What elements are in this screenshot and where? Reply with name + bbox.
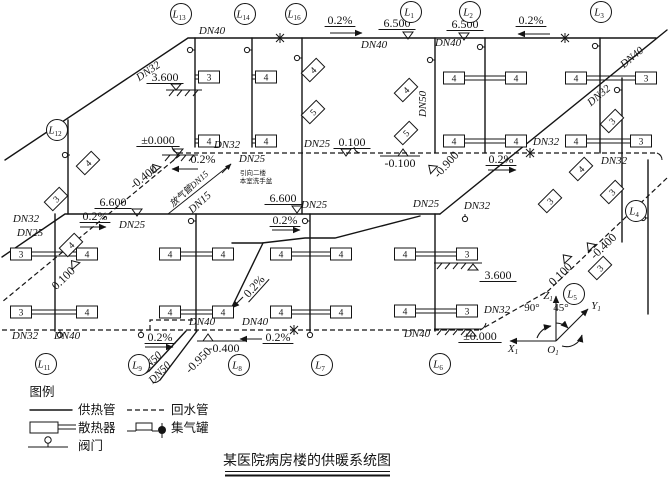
- svg-text:6.600: 6.600: [100, 195, 127, 209]
- svg-text:4: 4: [574, 137, 579, 147]
- radiator: 4: [160, 306, 181, 318]
- svg-text:4: 4: [168, 250, 173, 260]
- radiator: 4: [256, 71, 277, 83]
- elevation-label: 0.2%: [325, 13, 356, 27]
- radiator: 4: [271, 306, 292, 318]
- radiator: 4: [566, 135, 587, 147]
- pipe-size-label: DN40: [617, 44, 646, 71]
- svg-text:4: 4: [168, 308, 173, 318]
- axis-x-label: X1: [507, 343, 518, 356]
- svg-text:0.2%: 0.2%: [83, 209, 108, 223]
- drawing-title: 某医院病房楼的供暖系统图: [223, 453, 391, 469]
- elevation-label: ±0.000: [136, 133, 179, 147]
- svg-text:DN25: DN25: [118, 219, 146, 231]
- svg-text:3: 3: [639, 137, 644, 147]
- svg-text:引向二楼: 引向二楼: [240, 168, 267, 177]
- svg-text:4: 4: [85, 250, 90, 260]
- elevation-label: 0.2%: [239, 270, 270, 302]
- elevation-label: -0.400: [209, 341, 240, 355]
- radiator: 4: [566, 72, 587, 84]
- svg-text:-0.100: -0.100: [385, 156, 416, 170]
- radiator: 3: [636, 72, 657, 84]
- legend: 图例 供热管 回水管 散热器 集气罐 阀门: [28, 385, 209, 453]
- svg-text:0.2%: 0.2%: [191, 152, 216, 166]
- riser-tag: L2: [460, 2, 481, 23]
- radiator: 3: [600, 180, 624, 204]
- pipe-size-label: DN25: [238, 153, 266, 165]
- elevation-label: 3.600: [480, 268, 517, 282]
- svg-text:DN40: DN40: [360, 39, 388, 51]
- pipe-size-label: DN25: [412, 198, 440, 210]
- svg-text:3.600: 3.600: [485, 268, 512, 282]
- pipe-size-label: DN32: [11, 330, 39, 342]
- elevation-label: 6.600: [95, 195, 132, 209]
- diagram-canvas: 3444444443433434444444444343454543434333…: [0, 0, 670, 479]
- svg-text:0.2%: 0.2%: [273, 213, 298, 227]
- riser-tags: L13L14L16L1L2L3L12L4L5L11L9L8L7L6: [36, 2, 647, 376]
- svg-text:DN32: DN32: [12, 213, 40, 225]
- svg-text:4: 4: [264, 73, 269, 83]
- pipe-size-label: DN40: [403, 328, 431, 340]
- elevation-label: -0.400: [127, 162, 160, 192]
- svg-text:4: 4: [264, 137, 269, 147]
- radiator: 3: [199, 71, 220, 83]
- radiator: 5: [301, 100, 325, 124]
- pipe-size-label: DN25: [303, 138, 331, 150]
- angle-45-label: 45°: [553, 302, 568, 314]
- radiator: 3: [538, 189, 562, 213]
- svg-text:4: 4: [339, 250, 344, 260]
- svg-text:3: 3: [19, 250, 24, 260]
- pipe-size-label: DN25: [16, 227, 44, 239]
- svg-text:4: 4: [514, 137, 519, 147]
- note-label: 本室洗手盆: [240, 176, 273, 185]
- riser-tag: L14: [235, 4, 256, 25]
- svg-text:DN25: DN25: [412, 198, 440, 210]
- radiator: 4: [569, 157, 593, 181]
- radiator: 3: [457, 248, 478, 260]
- pipe-size-label: DN40: [434, 37, 462, 49]
- radiator: 3: [11, 306, 32, 318]
- elevation-label: 0.2%: [486, 152, 517, 166]
- pipe-size-label: DN40: [198, 25, 226, 37]
- legend-collector-label: 集气罐: [171, 420, 209, 435]
- svg-text:DN40: DN40: [188, 316, 216, 328]
- pipe-size-label: DN32: [483, 304, 511, 316]
- elevation-labels: 0.2%6.5006.5000.2%3.600±0.0000.100-0.100…: [49, 13, 620, 376]
- svg-text:4: 4: [574, 74, 579, 84]
- svg-text:-0.400: -0.400: [209, 341, 240, 355]
- svg-text:DN40: DN40: [53, 330, 81, 342]
- valve-icon: [592, 43, 600, 48]
- svg-text:DN25: DN25: [16, 227, 44, 239]
- svg-text:DN32: DN32: [213, 139, 241, 151]
- svg-text:-0.400: -0.400: [127, 162, 160, 192]
- radiator: 4: [395, 305, 416, 317]
- pipe-size-label: DN32: [584, 82, 613, 109]
- elevation-label: 3.600: [147, 70, 184, 84]
- radiator: 3: [588, 256, 612, 280]
- axis-origin-label: O1: [547, 344, 558, 357]
- radiator: 3: [11, 248, 32, 260]
- pipe-size-label: DN25: [300, 199, 328, 211]
- radiator: 4: [506, 135, 527, 147]
- riser-tag: L6: [430, 354, 451, 375]
- svg-text:3.600: 3.600: [152, 70, 179, 84]
- heating-system-drawing: 3444444443433434444444444343454543434333…: [0, 0, 670, 479]
- elevation-label: 0.100: [334, 135, 371, 149]
- valve-icon: [187, 47, 195, 52]
- note-label: 引向二楼: [240, 168, 267, 177]
- axes-icon: X1 Z1 Y1 O1 90° 45°: [507, 290, 601, 357]
- elevation-label: 0.2%: [191, 152, 216, 166]
- svg-text:±0.000: ±0.000: [141, 133, 175, 147]
- radiator: 4: [77, 306, 98, 318]
- valve-icon: [294, 55, 302, 60]
- svg-text:DN40: DN40: [434, 37, 462, 49]
- svg-text:3: 3: [465, 307, 470, 317]
- valve-icon: [427, 57, 435, 62]
- svg-text:±0.000: ±0.000: [463, 329, 497, 343]
- pipe-size-label: DN32: [600, 155, 628, 167]
- svg-text:4: 4: [85, 308, 90, 318]
- svg-text:4: 4: [452, 137, 457, 147]
- svg-text:DN25: DN25: [238, 153, 266, 165]
- svg-text:4: 4: [221, 308, 226, 318]
- radiator: 3: [44, 187, 68, 211]
- riser-tag: L8: [229, 355, 250, 376]
- valve-icon: [244, 47, 252, 52]
- svg-text:0.100: 0.100: [339, 135, 366, 149]
- svg-text:DN32: DN32: [600, 155, 628, 167]
- radiator: 4: [331, 306, 352, 318]
- radiator: 4: [444, 72, 465, 84]
- valve-icon: [307, 330, 312, 338]
- valve-icon: [62, 152, 70, 157]
- svg-text:4: 4: [403, 307, 408, 317]
- radiator-symbol-icon: [30, 422, 76, 433]
- svg-text:DN25: DN25: [300, 199, 328, 211]
- elevation-label: 0.2%: [80, 209, 111, 223]
- riser-tag: L9: [129, 355, 150, 376]
- elevation-label: 0.2%: [145, 330, 176, 344]
- elevation-label: 6.600: [265, 191, 302, 205]
- svg-text:3: 3: [19, 308, 24, 318]
- radiator: 4: [394, 78, 418, 102]
- air-collector-icon: [127, 423, 166, 438]
- svg-text:DN32: DN32: [483, 304, 511, 316]
- valve-icon: [188, 218, 196, 223]
- radiator: 4: [76, 151, 100, 175]
- riser-tag: L11: [36, 354, 57, 375]
- valve-icon: [614, 87, 622, 92]
- svg-text:DN32: DN32: [584, 82, 613, 109]
- elevation-label: -0.100: [385, 156, 416, 170]
- valves: [57, 43, 648, 337]
- svg-text:4: 4: [452, 74, 457, 84]
- svg-text:0.2%: 0.2%: [489, 152, 514, 166]
- svg-text:4: 4: [339, 308, 344, 318]
- pipe-size-label: DN32: [12, 213, 40, 225]
- axis-y-label: Y1: [591, 300, 601, 313]
- svg-text:4: 4: [403, 250, 408, 260]
- riser-tag: L4: [626, 201, 647, 222]
- pipe-size-label: DN25: [118, 219, 146, 231]
- valve-icon: [462, 214, 467, 222]
- svg-text:4: 4: [514, 74, 519, 84]
- riser-tag: L1: [401, 2, 422, 23]
- radiator: 4: [77, 248, 98, 260]
- svg-text:3: 3: [644, 74, 649, 84]
- pipe-size-label: DN40: [360, 39, 388, 51]
- svg-text:4: 4: [221, 250, 226, 260]
- svg-text:0.2%: 0.2%: [148, 330, 173, 344]
- radiator: 4: [256, 135, 277, 147]
- radiator: 4: [301, 58, 325, 82]
- legend-valve-label: 阀门: [78, 438, 103, 453]
- radiator: 4: [506, 72, 527, 84]
- valve-icon: [477, 44, 485, 49]
- riser-tag: L7: [312, 355, 333, 376]
- svg-text:本室洗手盆: 本室洗手盆: [240, 176, 273, 185]
- svg-text:DN40: DN40: [198, 25, 226, 37]
- radiator: 4: [331, 248, 352, 260]
- riser-tag: L16: [286, 4, 307, 25]
- svg-text:0.2%: 0.2%: [266, 330, 291, 344]
- riser-tag: L12: [47, 120, 68, 141]
- elevation-label: 0.2%: [516, 13, 547, 27]
- riser-tag: L13: [171, 4, 192, 25]
- svg-text:DN32: DN32: [11, 330, 39, 342]
- svg-text:3: 3: [207, 73, 212, 83]
- svg-text:DN32: DN32: [463, 200, 491, 212]
- radiator: 4: [213, 248, 234, 260]
- pipe-size-label: DN32: [463, 200, 491, 212]
- legend-radiator-label: 散热器: [78, 420, 116, 435]
- axis-z-label: Z1: [543, 290, 553, 303]
- svg-text:0.2%: 0.2%: [519, 13, 544, 27]
- valve-symbol-icon: [28, 437, 68, 447]
- radiator: 5: [394, 121, 418, 145]
- radiator: 3: [457, 305, 478, 317]
- svg-text:DN40: DN40: [241, 316, 269, 328]
- pipe-size-label: DN32: [532, 136, 560, 148]
- svg-text:3: 3: [465, 250, 470, 260]
- radiator: 4: [395, 248, 416, 260]
- elevation-label: 0.2%: [263, 330, 294, 344]
- svg-text:0.2%: 0.2%: [328, 13, 353, 27]
- radiator: 4: [444, 135, 465, 147]
- valve-icon: [302, 218, 310, 223]
- svg-text:DN25: DN25: [303, 138, 331, 150]
- svg-text:DN32: DN32: [532, 136, 560, 148]
- svg-text:4: 4: [207, 137, 212, 147]
- svg-text:6.600: 6.600: [270, 191, 297, 205]
- elevation-label: 0.2%: [270, 213, 301, 227]
- angle-90-label: 90°: [524, 302, 539, 314]
- pipe-size-label: DN40: [241, 316, 269, 328]
- svg-text:4: 4: [279, 250, 284, 260]
- svg-text:DN50: DN50: [417, 90, 429, 118]
- svg-text:DN40: DN40: [617, 44, 646, 71]
- valve-icon: [138, 330, 143, 338]
- title-block: 某医院病房楼的供暖系统图: [223, 453, 391, 476]
- pipe-size-label: DN32: [213, 139, 241, 151]
- svg-text:4: 4: [279, 308, 284, 318]
- radiator: 3: [631, 135, 652, 147]
- legend-supply-label: 供热管: [78, 402, 116, 417]
- radiator: 4: [213, 306, 234, 318]
- pipe-size-label: DN40: [188, 316, 216, 328]
- legend-return-label: 回水管: [171, 402, 209, 417]
- riser-tag: L3: [591, 2, 612, 23]
- radiator: 4: [160, 248, 181, 260]
- svg-text:DN40: DN40: [403, 328, 431, 340]
- radiator: 4: [271, 248, 292, 260]
- note-labels: 引向二楼本室洗手盆: [240, 168, 273, 185]
- radiator: 3: [600, 109, 624, 133]
- legend-heading: 图例: [29, 385, 54, 399]
- pipe-size-label: DN50: [417, 90, 429, 118]
- elevation-label: ±0.000: [458, 329, 501, 343]
- pipe-size-label: DN40: [53, 330, 81, 342]
